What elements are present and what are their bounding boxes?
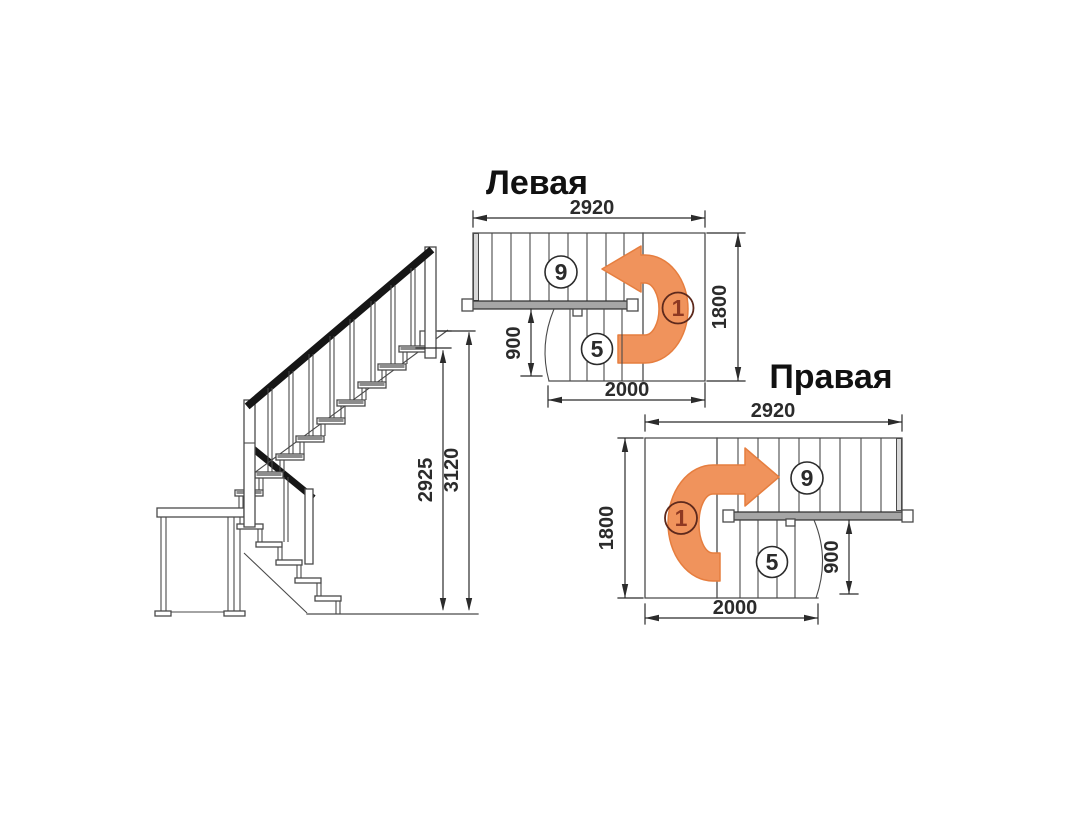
step-count-1: 1: [675, 505, 688, 531]
top-newel-post: [425, 247, 436, 358]
center-newel-post: [244, 400, 255, 527]
landing-edge-bar: [462, 299, 638, 316]
stair-drawing-canvas: 2925 3120 Левая 9 5: [0, 0, 1086, 816]
tread-supports: [239, 352, 407, 508]
step-count-1: 1: [672, 295, 685, 321]
dimension-2000-right: 2000: [645, 597, 818, 624]
dimension-2000-left: 2000: [548, 379, 705, 407]
lower-baluster: [284, 477, 288, 542]
lower-end-post: [305, 489, 313, 564]
dimension-900-right: 900: [821, 520, 858, 594]
dim-label: 1800: [709, 285, 731, 330]
dim-label: 900: [821, 540, 843, 573]
dim-label: 2920: [751, 400, 796, 422]
upper-handrail: [250, 252, 429, 404]
dimension-900-left: 900: [503, 309, 542, 376]
upper-treads: [235, 346, 427, 496]
step-count-9: 9: [555, 259, 568, 285]
step-count-5: 5: [766, 549, 779, 575]
dimension-1800-right: 1800: [596, 438, 643, 598]
dim-label: 2000: [713, 597, 758, 619]
plan-right-title: Правая: [769, 358, 892, 396]
flight-edge-shade: [897, 439, 902, 511]
dim-label: 900: [503, 326, 525, 359]
stair-side-elevation: 2925 3120: [155, 247, 478, 616]
flight-edge-shade: [474, 234, 479, 301]
landing-platform-box: [155, 508, 245, 616]
dim-label-3120: 3120: [441, 448, 463, 493]
stair-diagram: 2925 3120 Левая 9 5: [0, 0, 1086, 816]
plan-left: Левая 9 5 1 2920: [462, 164, 745, 407]
upper-railing: [244, 247, 436, 527]
lower-flight: [237, 524, 341, 614]
dimension-1800-left: 1800: [707, 233, 745, 381]
dim-label-2925: 2925: [415, 458, 437, 503]
dimension-2920-right: 2920: [645, 400, 902, 431]
step-count-5: 5: [591, 336, 604, 362]
step-count-9: 9: [801, 465, 814, 491]
landing-edge-bar: [723, 510, 913, 526]
dim-label: 1800: [596, 506, 618, 551]
dim-label: 2000: [605, 379, 650, 401]
dim-label: 2920: [570, 197, 615, 219]
